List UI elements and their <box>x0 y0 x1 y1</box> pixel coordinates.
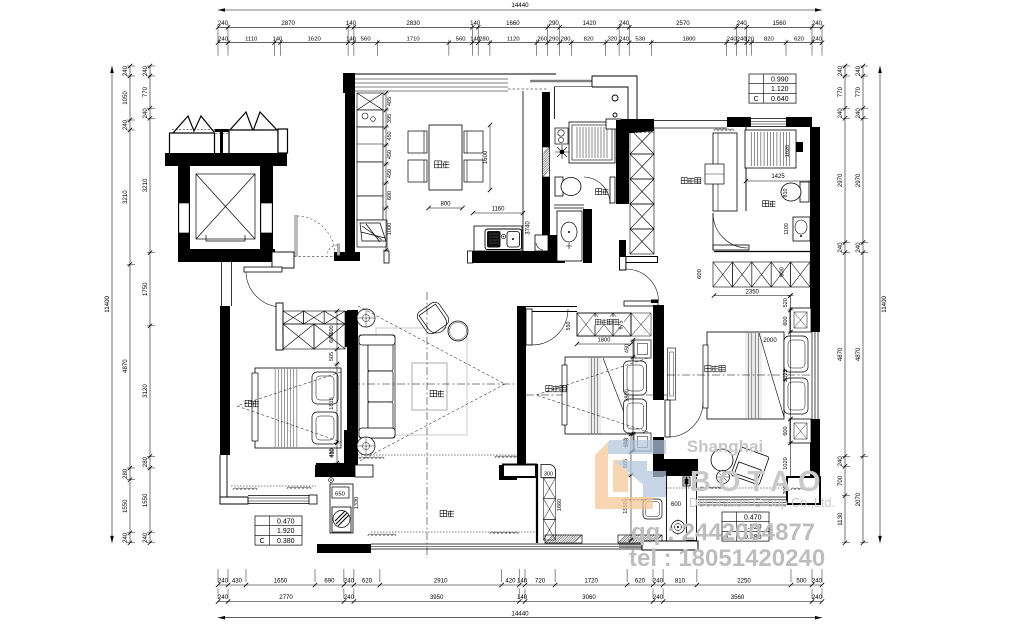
svg-text:Decoration Group Co.,Ltd.: Decoration Group Co.,Ltd. <box>689 496 835 510</box>
svg-text:240: 240 <box>142 65 149 76</box>
svg-text:11400: 11400 <box>881 295 888 312</box>
svg-text:550: 550 <box>566 322 572 331</box>
svg-text:1800: 1800 <box>682 37 696 43</box>
svg-text:820: 820 <box>764 37 775 43</box>
svg-text:600: 600 <box>387 191 393 200</box>
svg-text:140: 140 <box>346 37 357 43</box>
svg-text:290: 290 <box>549 20 560 27</box>
svg-text:770: 770 <box>142 86 149 97</box>
svg-text:C: C <box>754 96 759 103</box>
svg-text:1420: 1420 <box>583 20 597 27</box>
svg-text:2910: 2910 <box>434 578 448 585</box>
svg-text:1620: 1620 <box>308 37 322 43</box>
svg-text:810: 810 <box>675 578 686 585</box>
svg-text:675: 675 <box>619 321 625 330</box>
svg-text:1750: 1750 <box>142 282 149 296</box>
svg-text:2770: 2770 <box>279 594 293 601</box>
svg-text:600: 600 <box>329 325 335 334</box>
svg-text:2570: 2570 <box>676 20 690 27</box>
svg-text:280: 280 <box>142 456 149 467</box>
svg-text:140: 140 <box>517 578 528 585</box>
svg-text:2350: 2350 <box>746 290 760 296</box>
svg-text:4870: 4870 <box>122 359 129 373</box>
svg-text:140: 140 <box>346 20 357 27</box>
svg-text:1710: 1710 <box>407 37 421 43</box>
svg-text:1815: 1815 <box>329 397 335 409</box>
svg-text:240: 240 <box>218 578 229 585</box>
svg-text:240: 240 <box>855 108 862 119</box>
svg-text:1660: 1660 <box>506 20 520 27</box>
svg-text:600: 600 <box>783 426 789 435</box>
svg-text:1100: 1100 <box>784 223 790 235</box>
svg-text:240: 240 <box>122 532 129 543</box>
svg-text:600: 600 <box>697 269 703 279</box>
svg-text:280: 280 <box>122 468 129 479</box>
svg-text:0.640: 0.640 <box>771 96 789 103</box>
svg-text:500: 500 <box>796 578 807 585</box>
svg-text:1800: 1800 <box>625 389 631 401</box>
svg-text:700: 700 <box>837 475 844 486</box>
svg-text:240: 240 <box>837 65 844 76</box>
svg-text:240: 240 <box>837 242 844 253</box>
svg-text:2970: 2970 <box>837 173 844 187</box>
svg-text:1550: 1550 <box>522 376 528 388</box>
svg-text:395: 395 <box>387 114 393 123</box>
svg-text:120: 120 <box>744 37 755 43</box>
svg-text:140: 140 <box>470 20 481 27</box>
svg-text:1160: 1160 <box>492 207 506 213</box>
svg-text:565: 565 <box>520 452 526 461</box>
svg-text:4870: 4870 <box>837 347 844 361</box>
svg-text:430: 430 <box>232 578 243 585</box>
svg-text:1130: 1130 <box>837 512 844 526</box>
svg-text:3560: 3560 <box>731 594 745 601</box>
svg-text:620: 620 <box>794 37 805 43</box>
svg-text:3740: 3740 <box>526 221 532 235</box>
svg-text:1425: 1425 <box>771 174 785 180</box>
svg-text:2070: 2070 <box>855 492 862 506</box>
svg-text:tel : 18051420240: tel : 18051420240 <box>629 545 825 572</box>
svg-text:3060: 3060 <box>582 594 596 601</box>
svg-text:240: 240 <box>855 65 862 76</box>
svg-text:280: 280 <box>561 37 572 43</box>
svg-text:240: 240 <box>737 20 748 27</box>
svg-text:240: 240 <box>653 594 664 601</box>
svg-text:1720: 1720 <box>584 578 598 585</box>
svg-text:620: 620 <box>635 578 646 585</box>
svg-text:2250: 2250 <box>737 578 751 585</box>
svg-text:qq : 2442004877: qq : 2442004877 <box>631 519 815 546</box>
svg-text:2970: 2970 <box>855 173 862 187</box>
svg-text:1550: 1550 <box>122 499 129 513</box>
svg-text:1.920: 1.920 <box>277 528 295 535</box>
svg-text:320: 320 <box>607 37 618 43</box>
svg-text:505: 505 <box>329 352 335 361</box>
svg-text:240: 240 <box>855 242 862 253</box>
svg-text:2025: 2025 <box>783 369 789 381</box>
svg-text:1660: 1660 <box>557 499 563 511</box>
svg-text:2870: 2870 <box>281 20 295 27</box>
svg-text:3210: 3210 <box>122 190 129 204</box>
svg-text:450: 450 <box>387 131 393 140</box>
svg-text:1600: 1600 <box>483 150 489 164</box>
svg-text:3950: 3950 <box>430 594 444 601</box>
svg-text:1550: 1550 <box>142 493 149 507</box>
svg-text:770: 770 <box>855 86 862 97</box>
svg-text:650: 650 <box>335 492 345 498</box>
svg-text:405: 405 <box>387 97 393 106</box>
svg-text:1650: 1650 <box>274 578 288 585</box>
svg-text:600: 600 <box>783 316 789 325</box>
svg-text:620: 620 <box>362 578 373 585</box>
svg-text:600: 600 <box>780 267 786 277</box>
svg-text:240: 240 <box>344 594 355 601</box>
svg-text:1800: 1800 <box>598 338 611 344</box>
svg-text:140: 140 <box>517 594 528 601</box>
svg-text:240: 240 <box>122 65 129 76</box>
svg-text:600: 600 <box>671 502 682 508</box>
svg-text:450: 450 <box>330 448 336 457</box>
svg-text:690: 690 <box>324 578 335 585</box>
svg-text:530: 530 <box>635 37 646 43</box>
svg-text:240: 240 <box>619 37 630 43</box>
svg-text:3210: 3210 <box>142 178 149 192</box>
svg-text:450: 450 <box>625 344 631 353</box>
svg-text:3120: 3120 <box>142 384 149 398</box>
svg-text:560: 560 <box>456 37 467 43</box>
svg-text:1110: 1110 <box>245 37 258 43</box>
svg-text:11400: 11400 <box>104 295 111 312</box>
svg-text:C: C <box>260 538 265 545</box>
svg-text:240: 240 <box>727 37 738 43</box>
svg-text:2000: 2000 <box>763 338 777 344</box>
svg-text:14440: 14440 <box>511 610 529 617</box>
svg-text:450: 450 <box>387 169 393 178</box>
svg-text:560: 560 <box>361 37 372 43</box>
svg-text:260: 260 <box>537 37 548 43</box>
svg-text:720: 720 <box>535 578 546 585</box>
svg-text:810: 810 <box>783 189 789 198</box>
svg-text:Shanghai: Shanghai <box>687 437 764 456</box>
svg-text:240: 240 <box>812 20 823 27</box>
svg-text:300: 300 <box>544 472 553 478</box>
svg-text:240: 240 <box>653 578 664 585</box>
svg-text:770: 770 <box>837 86 844 97</box>
svg-text:450: 450 <box>387 150 393 159</box>
svg-text:240: 240 <box>837 456 844 467</box>
svg-text:0.380: 0.380 <box>277 538 295 545</box>
svg-text:280: 280 <box>479 37 490 43</box>
svg-text:1560: 1560 <box>773 20 787 27</box>
svg-text:1000: 1000 <box>387 223 393 235</box>
svg-text:BOTAO: BOTAO <box>690 466 828 498</box>
svg-text:0.470: 0.470 <box>277 519 295 526</box>
svg-text:820: 820 <box>584 37 595 43</box>
svg-text:2830: 2830 <box>406 20 420 27</box>
svg-text:1330: 1330 <box>354 497 360 509</box>
svg-text:240: 240 <box>218 594 229 601</box>
svg-text:240: 240 <box>812 37 823 43</box>
svg-text:1020: 1020 <box>785 145 791 157</box>
svg-text:140: 140 <box>272 37 283 43</box>
svg-text:240: 240 <box>812 578 823 585</box>
svg-text:1.120: 1.120 <box>771 86 789 93</box>
svg-text:240: 240 <box>142 532 149 543</box>
svg-text:520: 520 <box>783 298 789 307</box>
svg-text:420: 420 <box>505 578 516 585</box>
svg-text:240: 240 <box>837 108 844 119</box>
svg-text:240: 240 <box>218 20 229 27</box>
svg-text:240: 240 <box>218 37 229 43</box>
svg-text:240: 240 <box>812 594 823 601</box>
svg-text:290: 290 <box>549 37 560 43</box>
svg-text:1050: 1050 <box>122 91 129 105</box>
svg-text:240: 240 <box>344 578 355 585</box>
svg-text:14440: 14440 <box>511 2 529 9</box>
svg-text:0.990: 0.990 <box>771 77 789 84</box>
svg-text:4870: 4870 <box>855 347 862 361</box>
svg-text:800: 800 <box>440 202 451 208</box>
svg-text:1120: 1120 <box>507 37 520 43</box>
svg-text:240: 240 <box>122 119 129 130</box>
svg-text:240: 240 <box>142 108 149 119</box>
svg-text:240: 240 <box>619 20 630 27</box>
